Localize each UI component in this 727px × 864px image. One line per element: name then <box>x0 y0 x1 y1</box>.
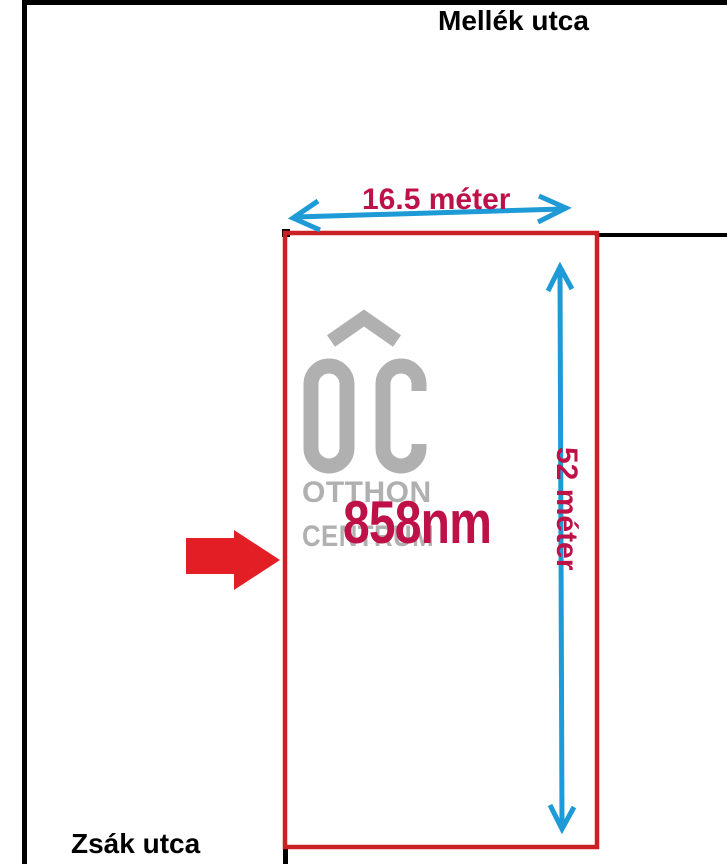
logo-roof-icon <box>331 318 397 341</box>
location-pointer-icon <box>186 530 280 590</box>
plot-width-label: 16.5 méter <box>362 185 510 215</box>
top-street-label: Mellék utca <box>438 7 589 35</box>
logo-letter-c-gap <box>405 391 433 444</box>
plot-diagram-canvas: Mellék utca Zsák utca 16.5 méter 52 méte… <box>0 0 727 864</box>
plot-depth-label: 52 méter <box>551 447 581 570</box>
otthon-centrum-logo-icon <box>311 318 433 466</box>
plot-diagram-drawing <box>0 0 727 864</box>
plot-area-label: 858nm <box>343 493 491 553</box>
logo-letter-o <box>311 366 347 466</box>
bottom-street-label: Zsák utca <box>71 830 200 858</box>
